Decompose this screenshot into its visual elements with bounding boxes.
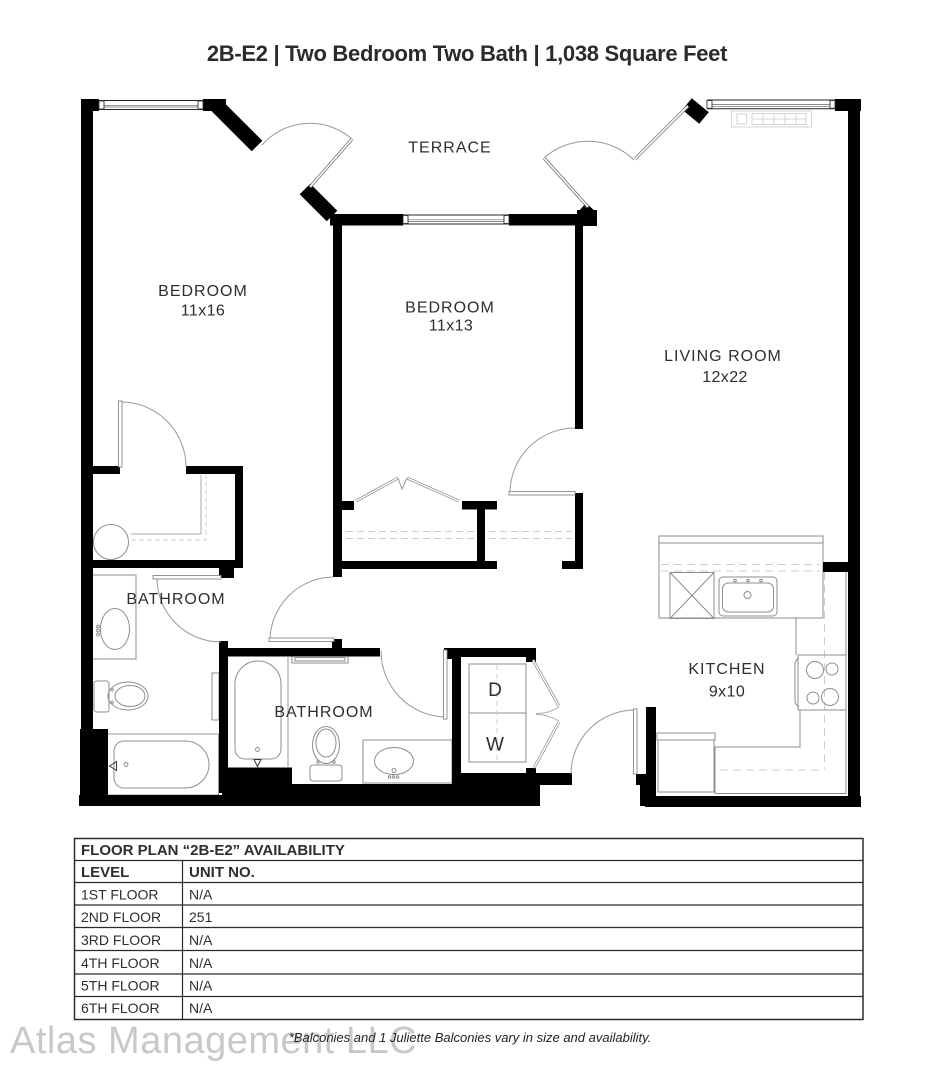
svg-text:251: 251	[189, 909, 213, 925]
svg-text:N/A: N/A	[189, 955, 213, 971]
svg-text:UNIT NO.: UNIT NO.	[189, 864, 255, 881]
svg-text:3RD FLOOR: 3RD FLOOR	[81, 932, 161, 948]
svg-text:N/A: N/A	[189, 1000, 213, 1016]
svg-text:BEDROOM: BEDROOM	[158, 283, 248, 300]
svg-text:5TH FLOOR: 5TH FLOOR	[81, 978, 160, 994]
svg-text:KITCHEN: KITCHEN	[688, 661, 765, 678]
svg-text:1ST FLOOR: 1ST FLOOR	[81, 887, 159, 903]
svg-text:FLOOR PLAN “2B-E2” AVAILABILIT: FLOOR PLAN “2B-E2” AVAILABILITY	[81, 842, 345, 859]
svg-text:2B-E2 | Two Bedroom Two Bath |: 2B-E2 | Two Bedroom Two Bath | 1,038 Squ…	[207, 41, 728, 66]
svg-text:W: W	[486, 735, 504, 756]
svg-text:N/A: N/A	[189, 978, 213, 994]
svg-text:BEDROOM: BEDROOM	[405, 300, 495, 317]
svg-text:4TH FLOOR: 4TH FLOOR	[81, 955, 160, 971]
svg-text:2ND FLOOR: 2ND FLOOR	[81, 909, 161, 925]
svg-text:LIVING ROOM: LIVING ROOM	[664, 348, 782, 365]
svg-text:N/A: N/A	[189, 932, 213, 948]
svg-text:6TH FLOOR: 6TH FLOOR	[81, 1000, 160, 1016]
svg-text:TERRACE: TERRACE	[408, 140, 491, 157]
svg-text:BATHROOM: BATHROOM	[274, 704, 373, 721]
svg-text:D: D	[488, 680, 502, 701]
svg-text:9x10: 9x10	[709, 684, 745, 701]
svg-text:N/A: N/A	[189, 887, 213, 903]
svg-text:11x13: 11x13	[429, 318, 473, 335]
svg-text:*Balconies and 1 Juliette Balc: *Balconies and 1 Juliette Balconies vary…	[289, 1030, 652, 1045]
svg-text:12x22: 12x22	[702, 369, 748, 386]
svg-text:11x16: 11x16	[181, 303, 225, 320]
svg-text:LEVEL: LEVEL	[81, 864, 129, 881]
svg-text:BATHROOM: BATHROOM	[126, 591, 225, 608]
